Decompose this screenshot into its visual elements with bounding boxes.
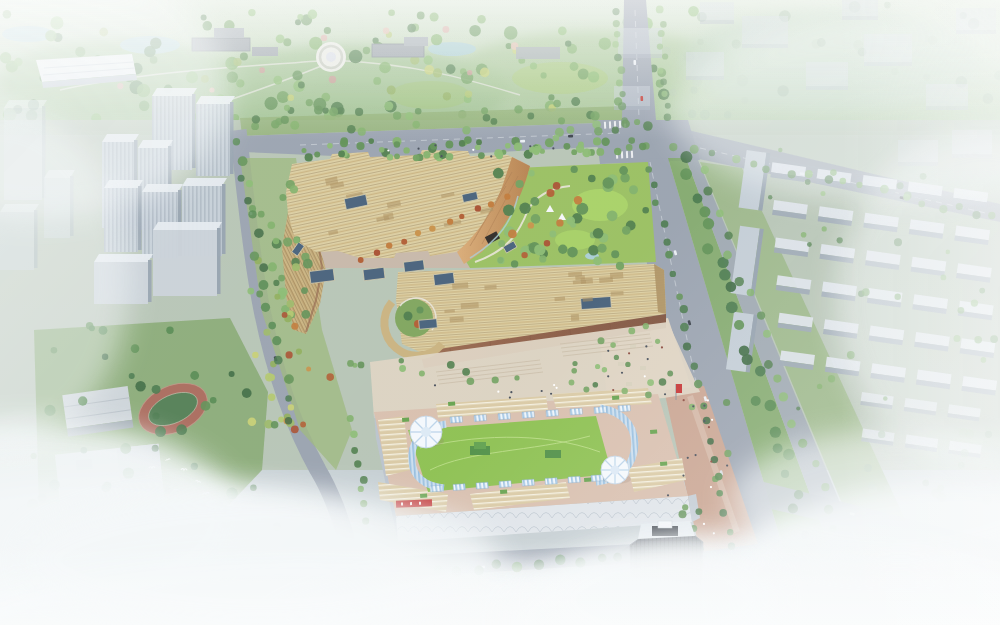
aerial-rendering <box>0 0 1000 625</box>
atmosphere-veil <box>0 0 1000 625</box>
scene-canvas <box>0 0 1000 625</box>
